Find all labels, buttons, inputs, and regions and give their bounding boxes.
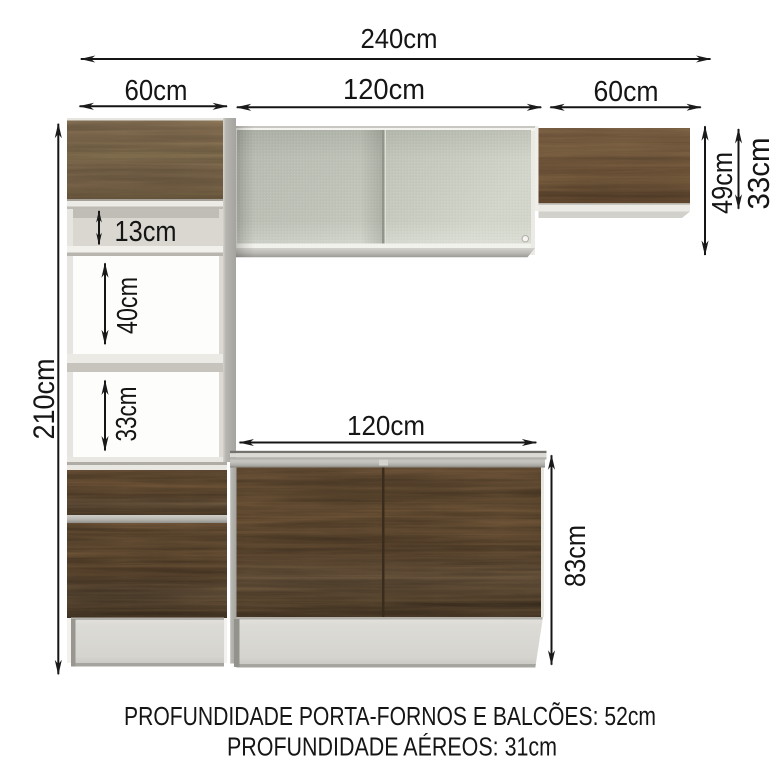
svg-text:83cm: 83cm xyxy=(560,525,592,587)
svg-text:210cm: 210cm xyxy=(28,359,61,440)
svg-text:60cm: 60cm xyxy=(125,75,188,107)
svg-text:13cm: 13cm xyxy=(115,216,177,248)
svg-text:120cm: 120cm xyxy=(343,74,425,106)
svg-text:40cm: 40cm xyxy=(112,277,144,334)
svg-text:60cm: 60cm xyxy=(594,76,659,108)
svg-text:33cm: 33cm xyxy=(111,387,143,442)
svg-text:33cm: 33cm xyxy=(741,138,776,210)
svg-text:PROFUNDIDADE AÉREOS: 31cm: PROFUNDIDADE AÉREOS: 31cm xyxy=(227,733,557,762)
svg-text:240cm: 240cm xyxy=(361,23,438,54)
svg-text:49cm: 49cm xyxy=(707,152,739,214)
svg-text:PROFUNDIDADE PORTA-FORNOS E BA: PROFUNDIDADE PORTA-FORNOS E BALCÕES: 52c… xyxy=(124,702,656,731)
svg-text:120cm: 120cm xyxy=(347,410,425,441)
